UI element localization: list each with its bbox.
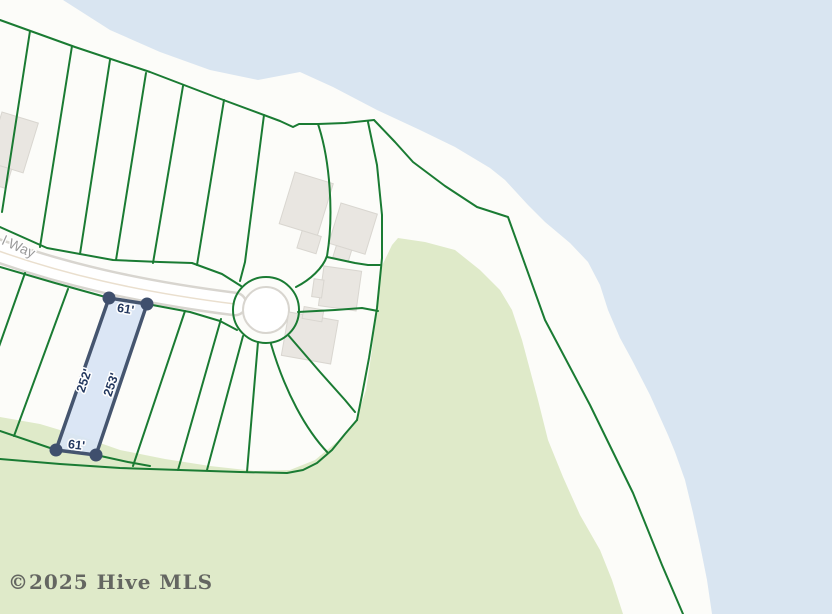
cul-de-sac-pavement (243, 287, 289, 333)
mls-watermark: ©2025 Hive MLS (8, 570, 213, 594)
lot-corner-marker (141, 298, 154, 311)
lot-corner-marker (90, 449, 103, 462)
lot-corner-marker (103, 292, 116, 305)
lot-corner-marker (50, 444, 63, 457)
mls-map[interactable]: 61' 252' 253' 61' l Way ©2025 Hive MLS (0, 0, 832, 614)
lot-dimension-front: 61' (116, 301, 135, 317)
lot-dimension-rear: 61' (67, 437, 85, 453)
map-canvas[interactable]: 61' 252' 253' 61' l Way ©2025 Hive MLS (0, 0, 832, 614)
